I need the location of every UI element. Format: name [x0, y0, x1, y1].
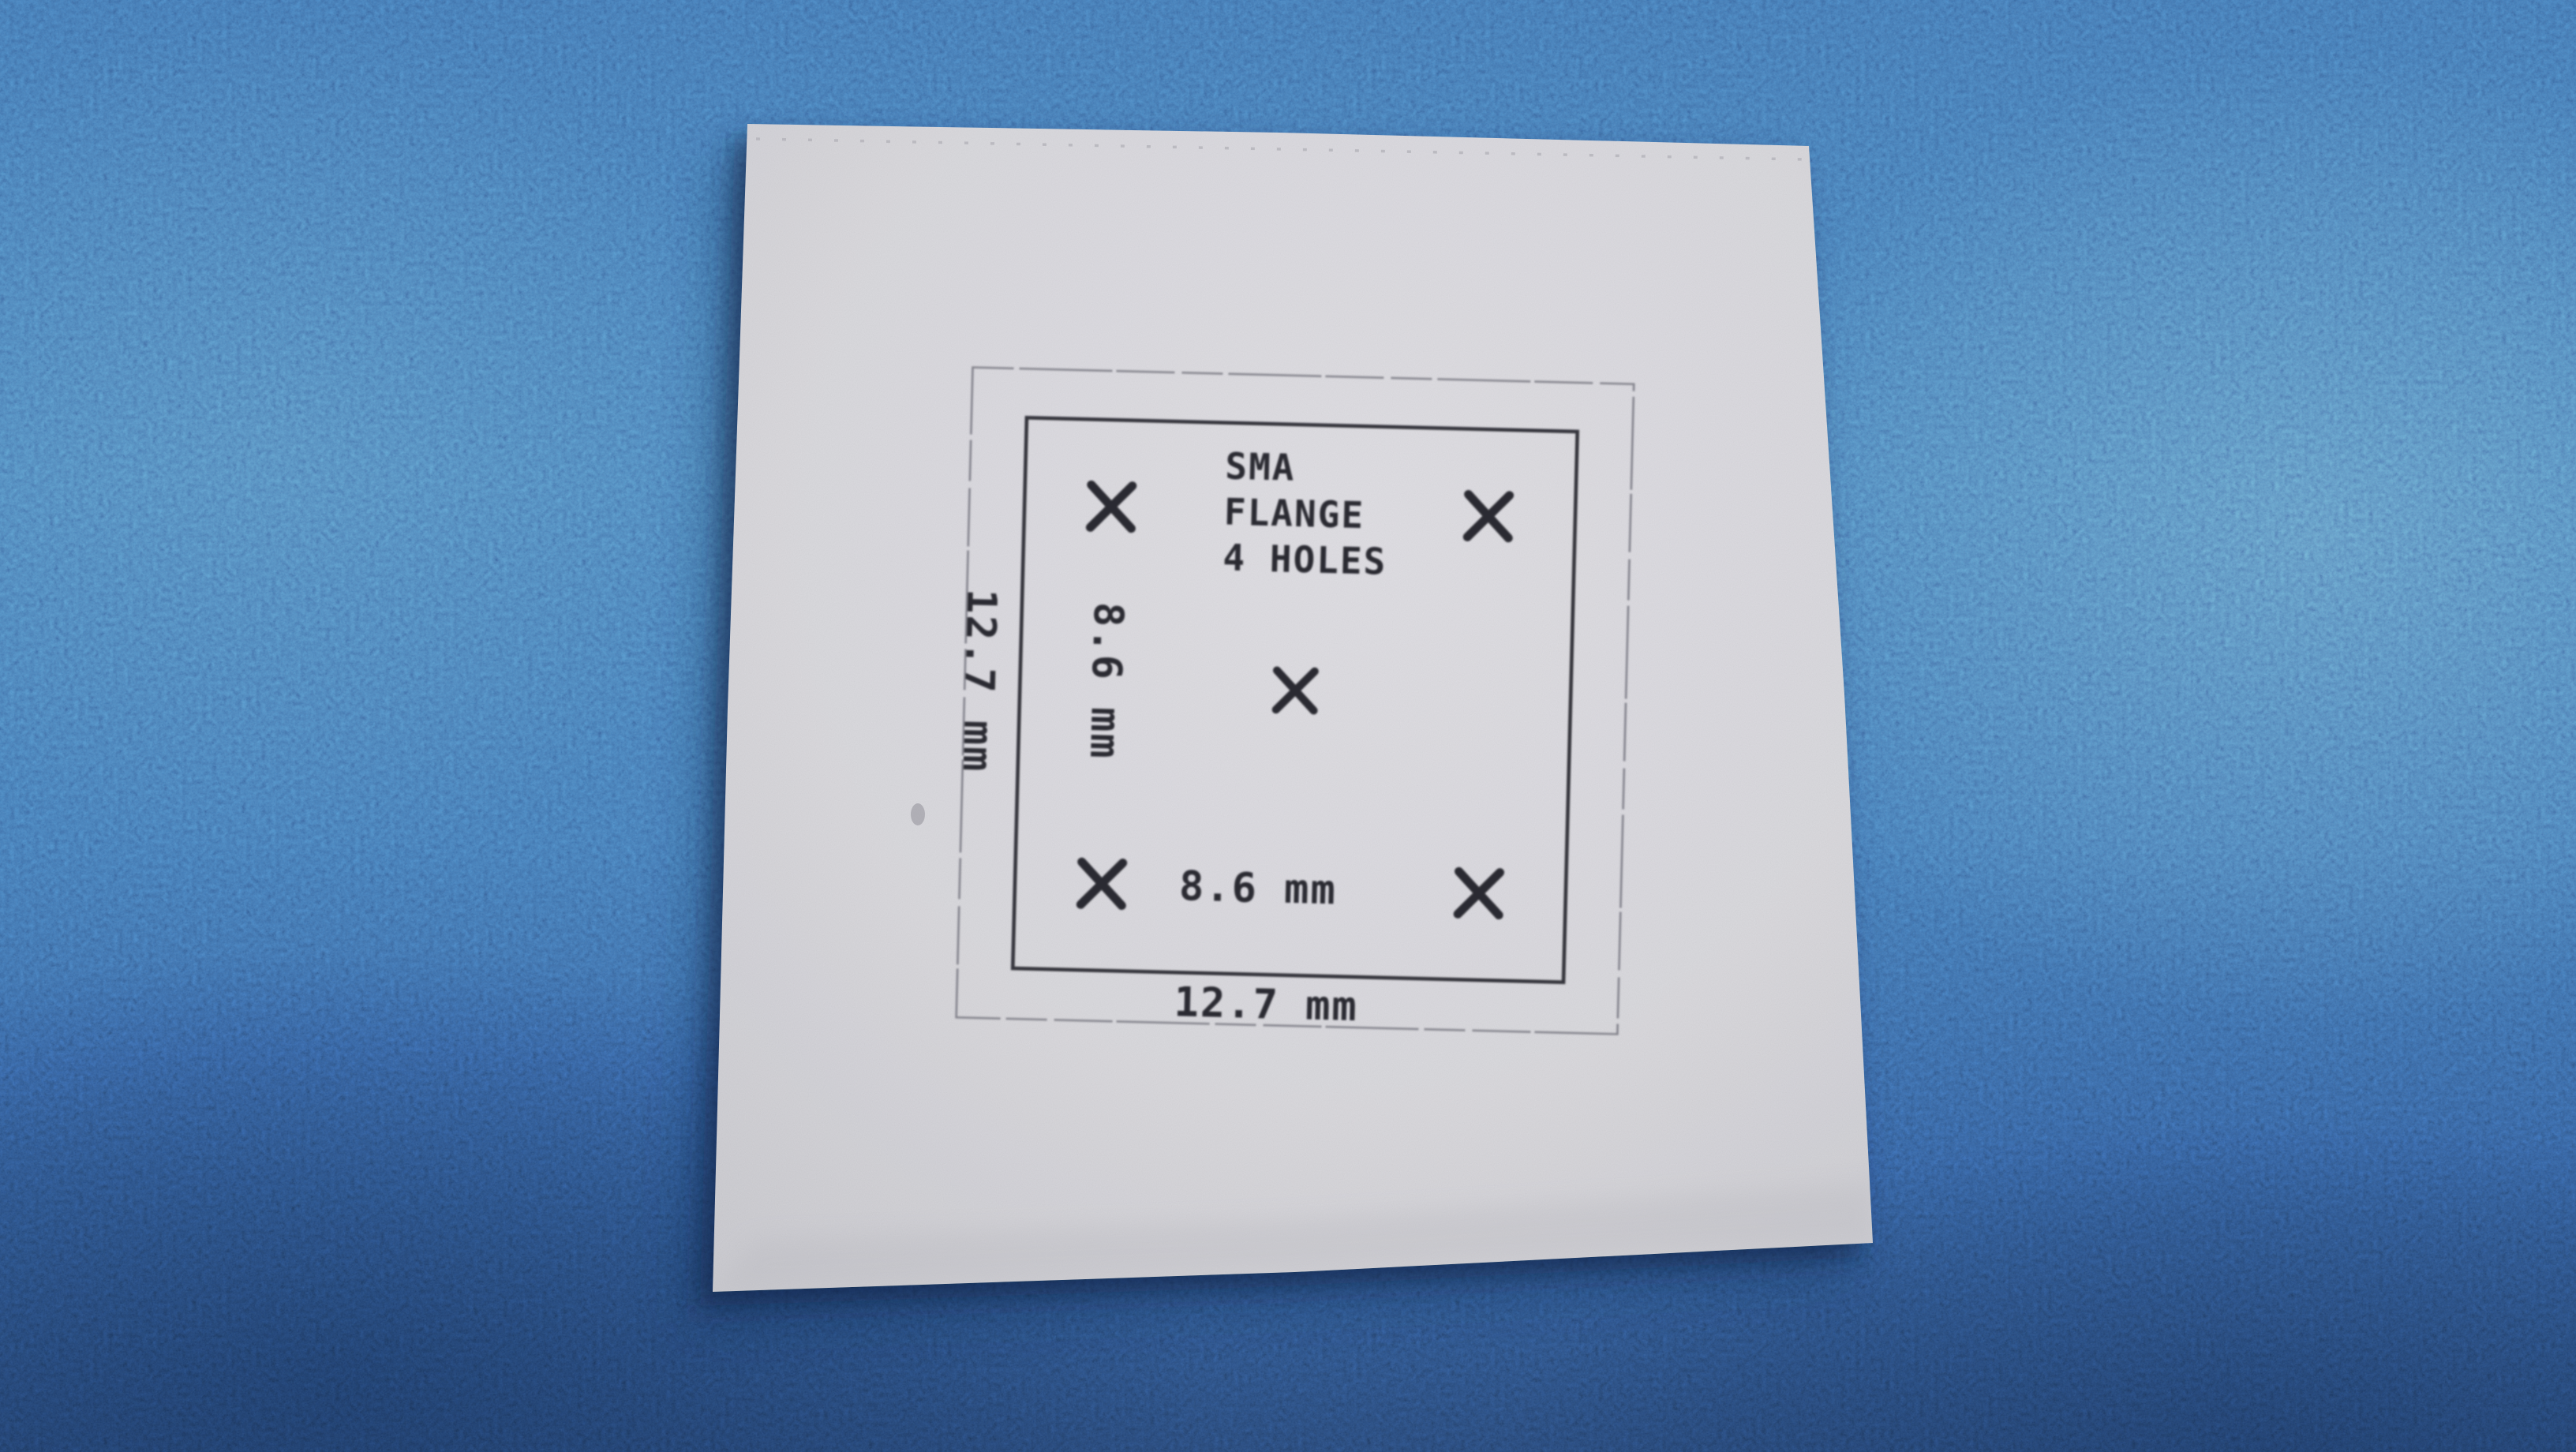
paper-blemish: [911, 803, 925, 825]
photo-stage: SMA FLANGE 4 HOLES 12.7 mm 8.6 mm 8.6 mm…: [0, 0, 2576, 1452]
title-line-1: SMA: [1225, 445, 1296, 489]
outer-height-dimension: 12.7 mm: [953, 589, 1005, 774]
title-line-3: 4 HOLES: [1222, 537, 1387, 583]
hole-spacing-vertical-dimension: 8.6 mm: [1080, 601, 1132, 760]
paper-grain: [695, 110, 1894, 1310]
hole-spacing-horizontal-dimension: 8.6 mm: [1178, 863, 1337, 914]
photo-of-sma-flange-drill-template: SMA FLANGE 4 HOLES 12.7 mm 8.6 mm 8.6 mm…: [0, 0, 2576, 1452]
outer-width-dimension: 12.7 mm: [1174, 979, 1359, 1031]
title-line-2: FLANGE: [1223, 491, 1365, 537]
